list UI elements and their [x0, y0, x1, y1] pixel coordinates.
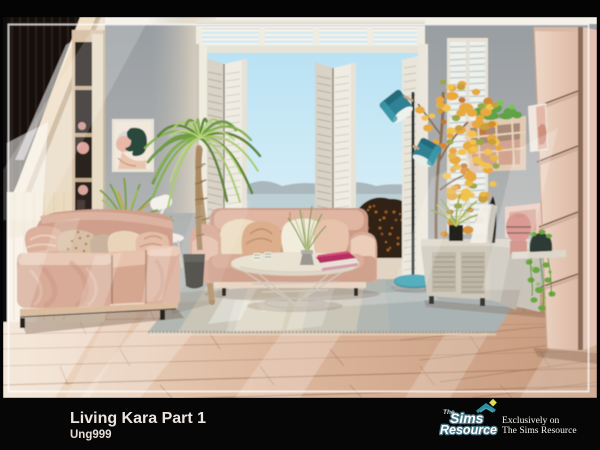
svg-text:Resource: Resource [440, 423, 497, 437]
svg-text:The Sims Resource: The Sims Resource [502, 425, 577, 436]
svg-text:Ung999: Ung999 [70, 429, 112, 441]
svg-text:Living Kara Part 1: Living Kara Part 1 [70, 410, 206, 427]
